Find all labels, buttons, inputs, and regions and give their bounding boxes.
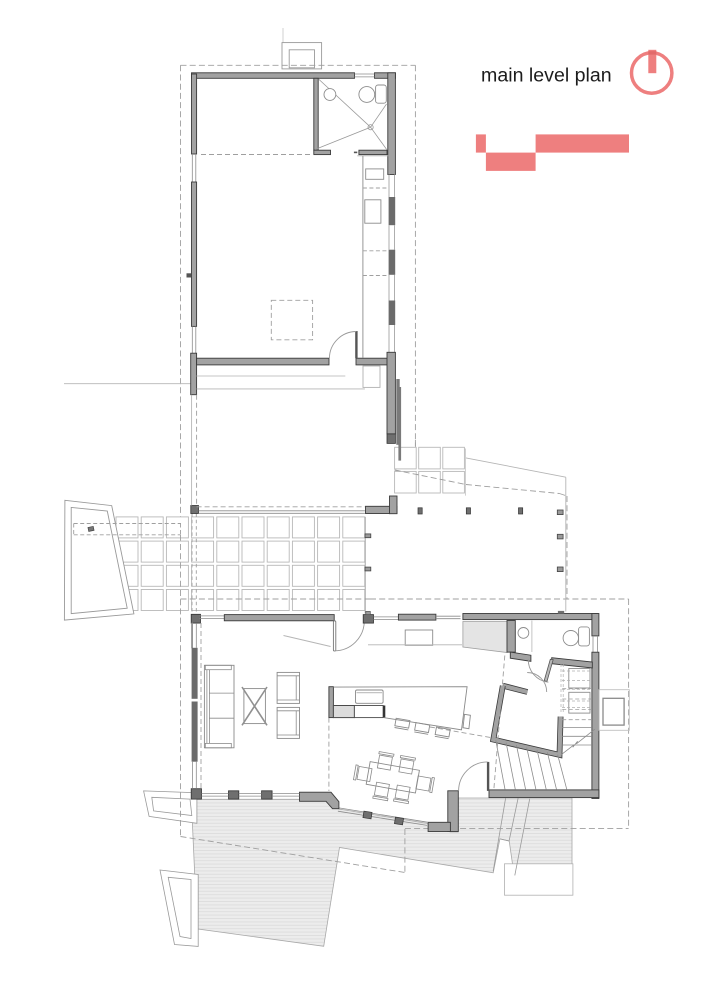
svg-text:main level plan: main level plan [481,65,612,87]
